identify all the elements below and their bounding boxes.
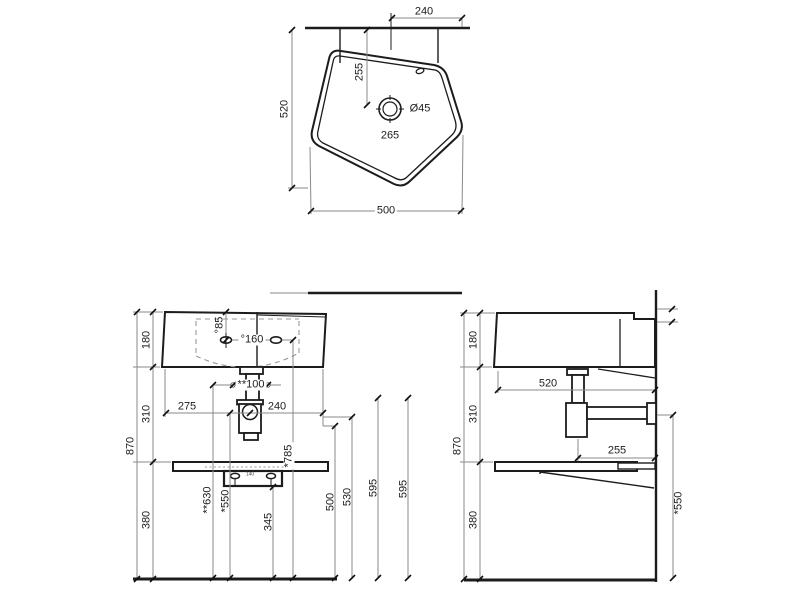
dim-label-550-front: *550	[221, 490, 232, 513]
dim-label-drain-diameter: Ø45	[410, 104, 431, 115]
dim-label-100-front: **100	[236, 380, 267, 391]
dim-label-240-front: 240	[268, 402, 286, 413]
dim-label-630-front: **630	[203, 487, 214, 514]
overflow-hole	[415, 67, 424, 74]
dim-label-785-front: *785	[284, 443, 295, 470]
dim-label-180-side: 180	[469, 331, 480, 349]
dim-label-870-side: 870	[453, 437, 464, 455]
dim-label-255-top: 255	[355, 63, 366, 81]
dim-label-520-top: 520	[280, 100, 291, 118]
shelf-side	[495, 462, 637, 471]
basin-outline-outer	[312, 51, 462, 186]
basin-side-outline	[494, 313, 655, 367]
dim-label-140-bracket: 140	[246, 473, 254, 478]
dim-label-520-side: 520	[539, 379, 557, 390]
dim-label-310-side: 310	[469, 405, 480, 423]
bracket-hole-right	[267, 473, 276, 478]
tap-hole-right	[271, 337, 282, 343]
front-view-drawing	[133, 293, 462, 582]
shelf-gusset	[540, 472, 654, 488]
dim-label-530-front: 530	[343, 488, 354, 506]
dim-label-255-side: 255	[608, 446, 626, 457]
dim-label-345-front: 345	[264, 513, 275, 531]
dim-label-265-top: 265	[381, 131, 399, 142]
dim-label-160-front: °160	[239, 335, 266, 346]
dim-label-85-front: °85	[215, 317, 226, 334]
dim-label-380-side: 380	[469, 511, 480, 529]
drain-hole-inner	[383, 102, 397, 116]
dim-label-595a-front: 595	[369, 479, 380, 497]
dim-label-500-front: 500	[326, 493, 337, 511]
dim-label-500-top: 500	[375, 206, 397, 217]
basin-outline-inner	[318, 56, 456, 180]
trap-side	[566, 369, 656, 437]
dim-label-380-front: 380	[142, 511, 153, 529]
dim-label-180-front: 180	[142, 331, 153, 349]
dimension-ticks-side	[461, 306, 676, 582]
bracket-hole-left	[231, 473, 240, 478]
height-reference-lines	[213, 340, 408, 578]
dim-label-310-front: 310	[142, 405, 153, 423]
dim-label-870-front: 870	[126, 437, 137, 455]
dim-label-550-side: *550	[674, 492, 685, 515]
drain-hole-outer	[379, 98, 401, 120]
dim-label-240-top: 240	[415, 7, 433, 18]
side-view-drawing	[460, 290, 678, 582]
technical-drawing-canvas: 240 520 500 255 Ø45 265 180 310 870 380 …	[0, 0, 800, 600]
top-view-drawing	[288, 13, 470, 214]
dim-label-595b-front: 595	[399, 480, 410, 498]
dim-label-275-front: 275	[178, 402, 196, 413]
